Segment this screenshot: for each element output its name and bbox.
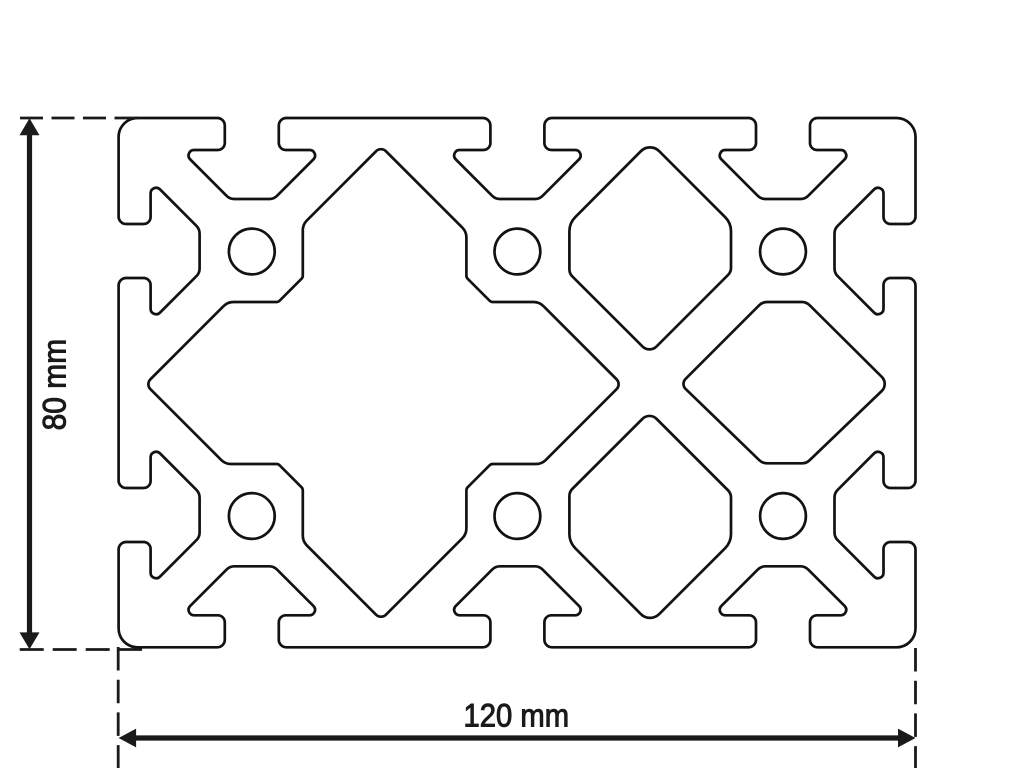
svg-text:120 mm: 120 mm	[464, 698, 570, 734]
svg-text:80 mm: 80 mm	[37, 339, 73, 431]
